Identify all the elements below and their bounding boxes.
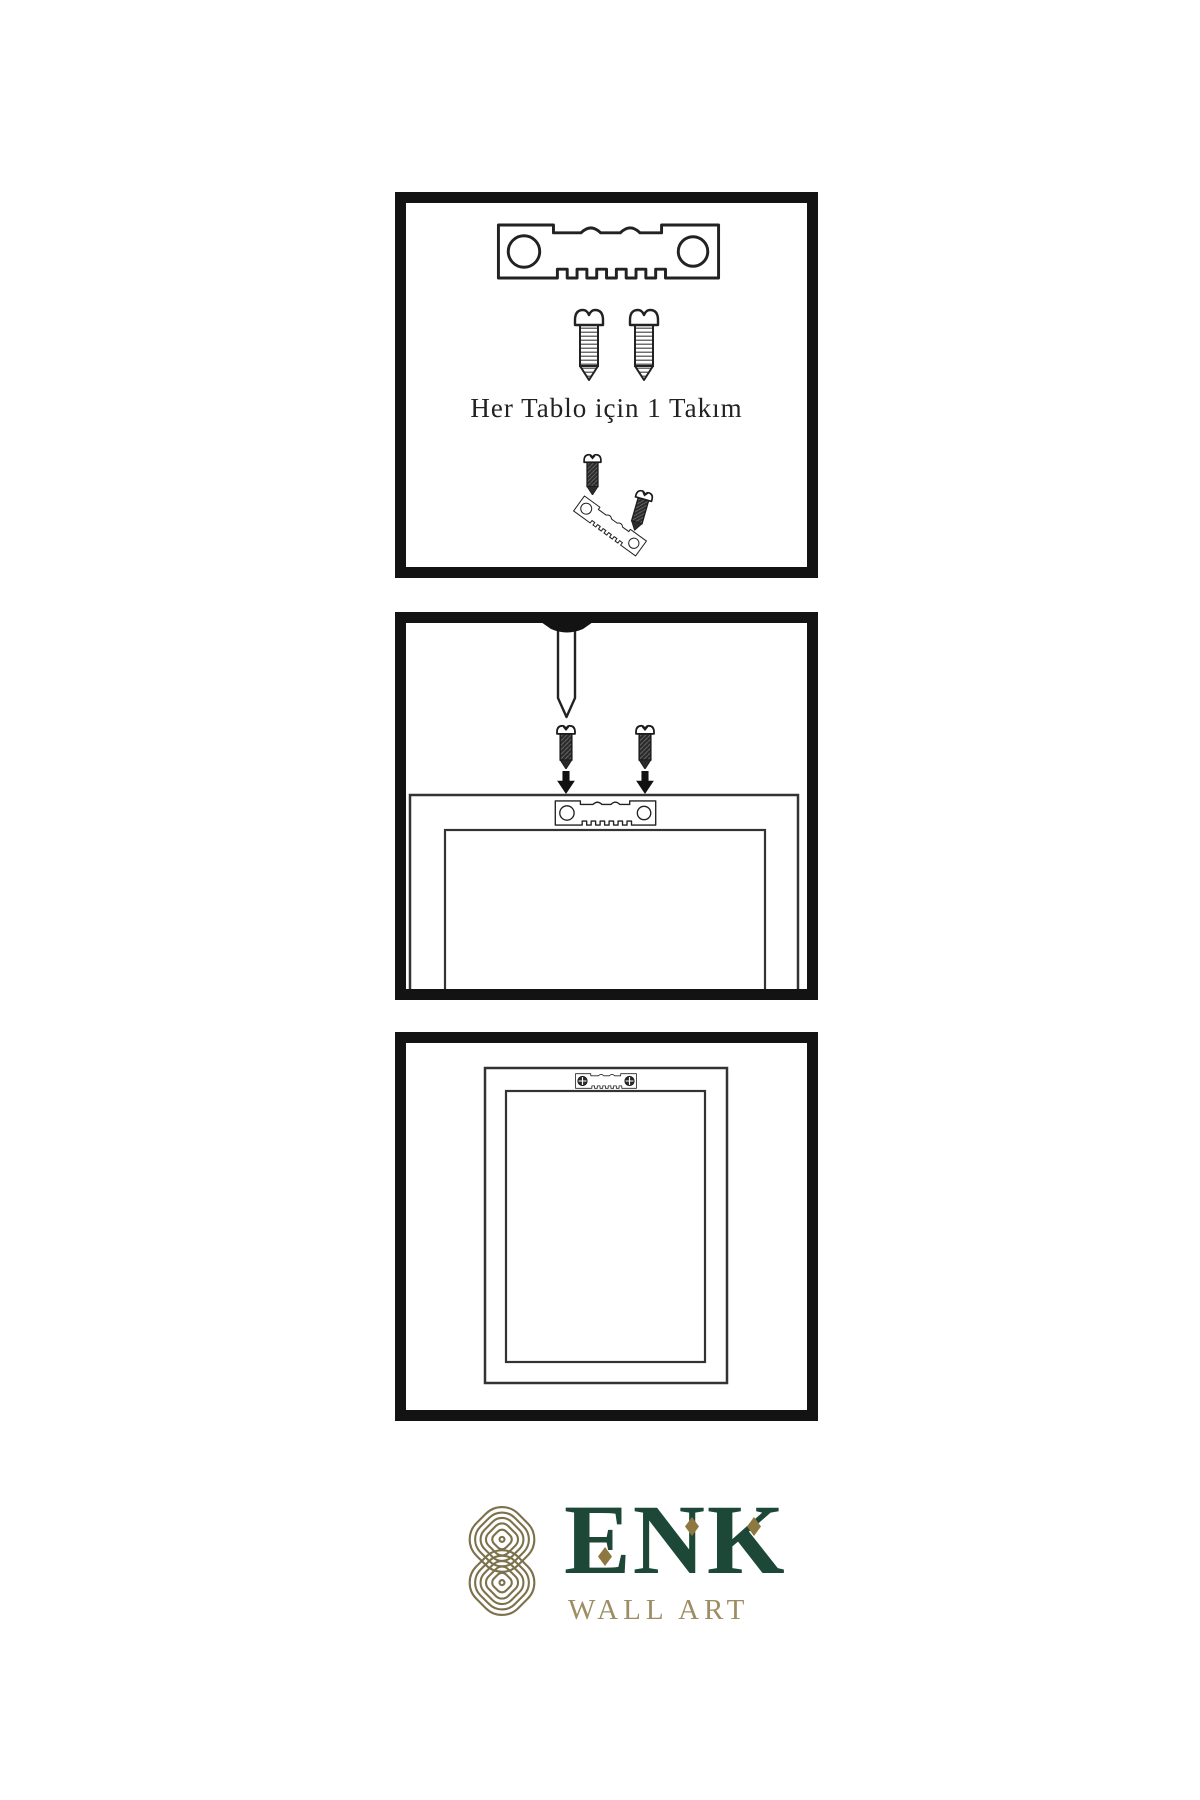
hardware-kit-illustration — [406, 203, 807, 567]
dark-screw-icon — [636, 726, 654, 769]
dark-screw-icon — [584, 455, 601, 495]
screw-head-icon — [625, 1076, 634, 1085]
down-arrow-icon — [557, 771, 575, 794]
sawtooth-hanger-icon — [498, 225, 718, 278]
sawtooth-hanger-icon — [555, 801, 655, 825]
instruction-panel-wall-mounting — [395, 612, 818, 1000]
knot-loop-top — [460, 1498, 544, 1582]
screw-icon — [575, 310, 603, 380]
instruction-panel-hardware-kit: Her Tablo için 1 Takım — [395, 192, 818, 578]
wall-mounting-illustration — [406, 623, 807, 989]
instruction-panel-frame-hung — [395, 1032, 818, 1421]
knot-icon — [440, 1494, 564, 1628]
nail-icon — [541, 623, 593, 717]
screw-head-icon — [578, 1076, 587, 1085]
down-arrow-icon — [636, 771, 654, 794]
knot-loop-bottom — [460, 1541, 544, 1625]
kit-caption: Her Tablo için 1 Takım — [406, 393, 807, 424]
dark-screw-icon — [557, 726, 575, 769]
frame-hung-illustration — [406, 1043, 807, 1410]
frame-back-icon — [485, 1068, 727, 1383]
screw-icon — [630, 310, 658, 380]
dark-screw-icon — [626, 490, 653, 533]
mounted-sawtooth-hanger-icon — [576, 1074, 637, 1089]
brand-name: ENK — [564, 1490, 787, 1590]
brand-logo: ENK WALL ART — [440, 1494, 780, 1634]
brand-subtitle: WALL ART — [568, 1594, 749, 1627]
